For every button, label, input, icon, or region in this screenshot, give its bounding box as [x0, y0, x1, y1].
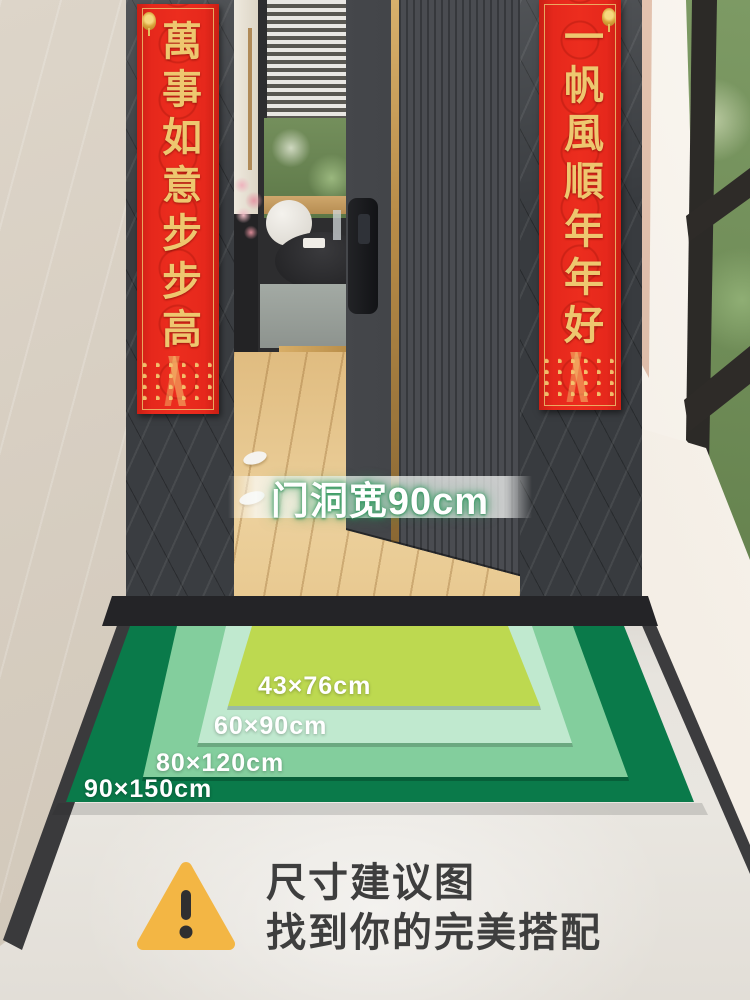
footer-caption-line1: 尺寸建议图 [266, 858, 602, 908]
footer-caption: 尺寸建议图 找到你的完美搭配 [266, 858, 602, 958]
exclamation-bar [181, 890, 191, 920]
mat-size-label: 43×76cm [258, 672, 371, 701]
mat-outer-shadow [52, 803, 708, 815]
mat-shadow-line [227, 706, 541, 710]
mat-size-label: 60×90cm [214, 712, 327, 741]
exclamation-dot [180, 926, 193, 939]
mat-size-label: 90×150cm [84, 775, 212, 804]
footer-caption-line2: 找到你的完美搭配 [266, 908, 602, 958]
door-width-label: 门洞宽90cm [228, 476, 532, 518]
mat-shadow-line [197, 743, 573, 747]
mat-size-label: 80×120cm [156, 749, 284, 778]
warning-triangle-icon [136, 860, 236, 954]
product-size-guide-image: 萬事如意步步高 一帆風順年年好 43×76cm 60×90cm 80×120cm… [0, 0, 750, 1000]
door-width-text: 门洞宽90cm [271, 470, 489, 525]
